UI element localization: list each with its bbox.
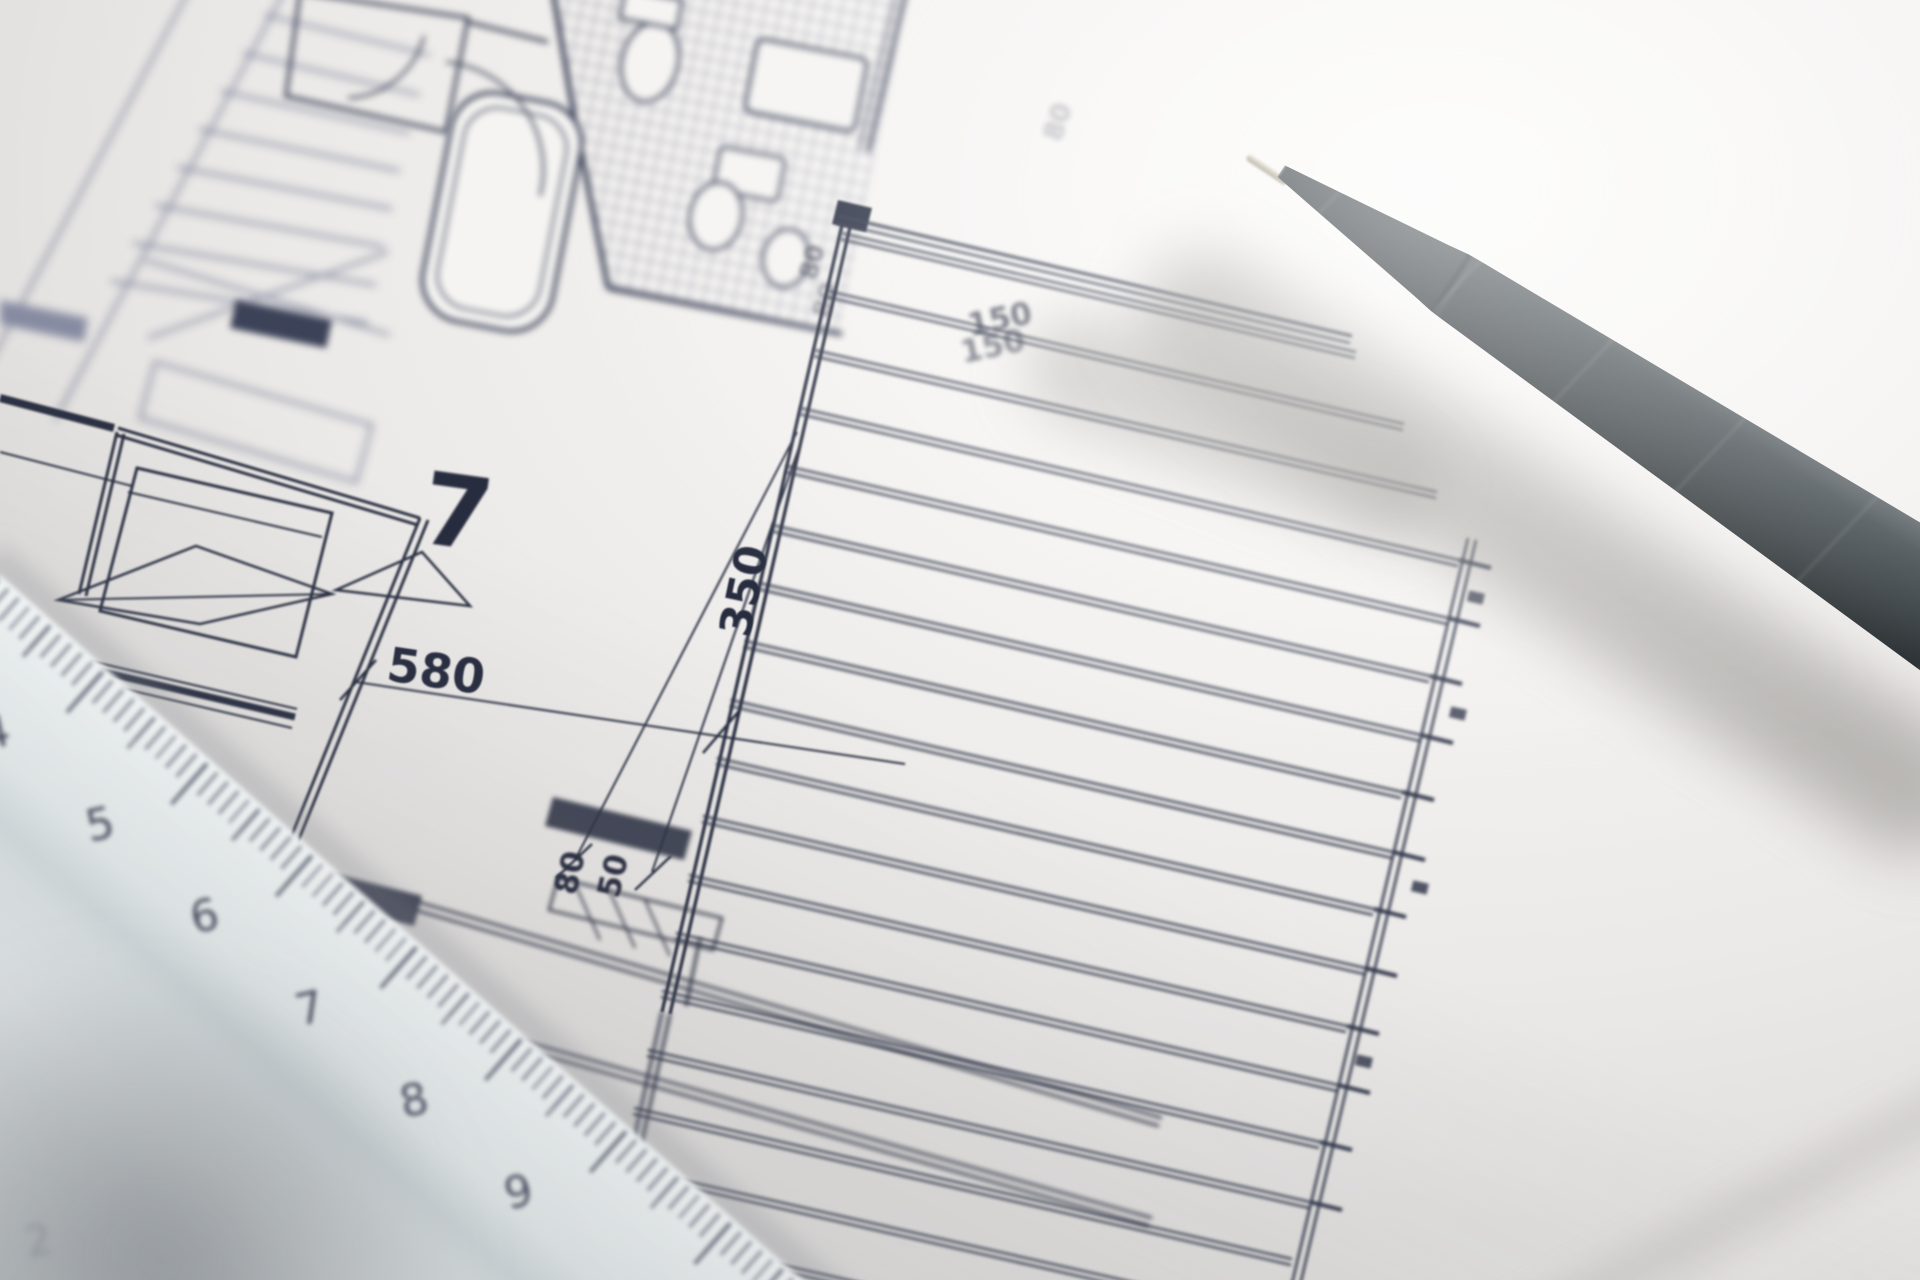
photo-architectural-plan: 7 580 350 80 50 150 150 80 80 80 4 5 6 7…: [0, 0, 1920, 1280]
room-number-label: 7: [416, 459, 499, 568]
staircase-drawing: [0, 0, 430, 482]
dimension-580-label: 580: [384, 642, 488, 703]
dimension-50-label: 50: [594, 851, 634, 900]
dimension-80-label: 80: [551, 848, 591, 897]
bathtub: [415, 86, 589, 339]
bed: [100, 468, 332, 657]
